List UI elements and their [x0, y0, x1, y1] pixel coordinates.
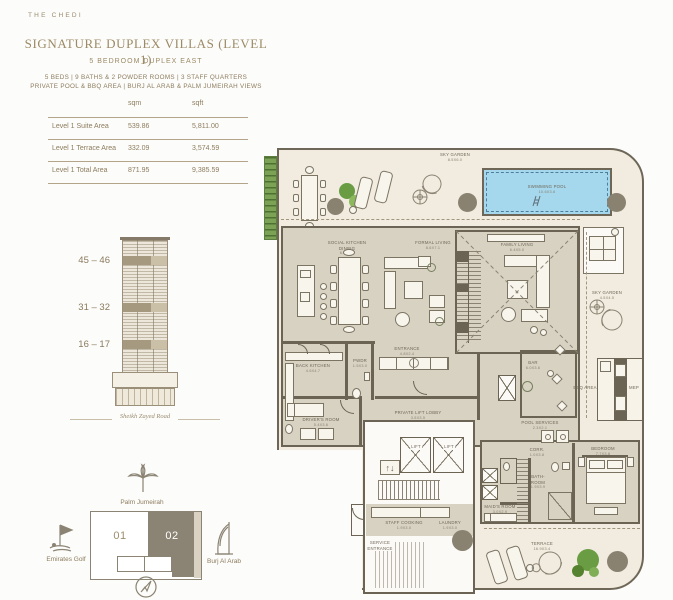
page-subtitle: 5 BEDROOM DUPLEX EAST — [20, 58, 272, 65]
unit-02-block-ext — [172, 556, 194, 577]
highlight-floor-band — [123, 256, 151, 265]
round-table-icon — [413, 190, 427, 204]
spec-line-1: 5 BEDS | 9 BATHS & 2 POWDER ROOMS | 3 ST… — [10, 74, 282, 81]
row-sqft: 3,574.59 — [192, 145, 219, 152]
highlight-floor-band — [151, 303, 167, 312]
unit-01-number: 01 — [100, 530, 140, 542]
tower-podium — [112, 372, 178, 388]
void-diagonal — [456, 231, 578, 353]
golf-flag-icon — [46, 522, 76, 554]
compass-north-icon — [134, 575, 158, 599]
burj-al-arab-icon — [213, 522, 235, 558]
palm-tree-icon — [128, 464, 158, 494]
highlight-floor-band — [123, 340, 151, 349]
highlight-floor-band — [151, 256, 167, 265]
row-sqm: 539.86 — [128, 123, 149, 130]
spec-line-2: PRIVATE POOL & BBQ AREA | BURJ AL ARAB &… — [10, 83, 282, 90]
burj-al-arab-label: Burj Al Arab — [192, 558, 256, 565]
area-table: sqm sqft Level 1 Suite Area 539.86 5,811… — [48, 96, 248, 186]
curved-chair-icon — [529, 548, 565, 583]
row-label: Level 1 Terrace Area — [52, 145, 116, 152]
table-rule — [48, 161, 248, 162]
highlight-floor-band — [151, 340, 167, 349]
row-label: Level 1 Total Area — [52, 167, 108, 174]
plan-overlay — [260, 140, 660, 600]
floor-range-31-32: 31 – 32 — [70, 302, 110, 313]
table-rule — [48, 183, 248, 184]
table-rule — [48, 117, 248, 118]
row-sqft: 9,385.59 — [192, 167, 219, 174]
unit-02-number: 02 — [152, 530, 192, 542]
highlight-floor-band — [123, 303, 151, 312]
road-label: Sheikh Zayed Road — [95, 413, 195, 420]
palm-jumeirah-label: Palm Jumeirah — [97, 499, 187, 506]
footprint-core-divider — [144, 556, 145, 572]
floor-range-16-17: 16 – 17 — [70, 339, 110, 350]
col-header-sqm: sqm — [128, 100, 141, 107]
floor-range-45-46: 45 – 46 — [70, 255, 110, 266]
curved-chair-icon — [420, 172, 444, 196]
brand-logo: THE CHEDI — [28, 12, 83, 19]
brochure-page: THE CHEDI SIGNATURE DUPLEX VILLAS (LEVEL… — [0, 0, 673, 600]
row-sqm: 332.09 — [128, 145, 149, 152]
round-table-icon — [590, 300, 604, 314]
pool-ladder-icon — [533, 196, 540, 206]
table-rule — [48, 139, 248, 140]
tower-base — [115, 388, 175, 406]
row-sqm: 871.95 — [128, 167, 149, 174]
row-sqft: 5,811.00 — [192, 123, 219, 130]
row-label: Level 1 Suite Area — [52, 123, 109, 130]
col-header-sqft: sqft — [192, 100, 203, 107]
unit-02-terrace-strip — [194, 512, 201, 578]
